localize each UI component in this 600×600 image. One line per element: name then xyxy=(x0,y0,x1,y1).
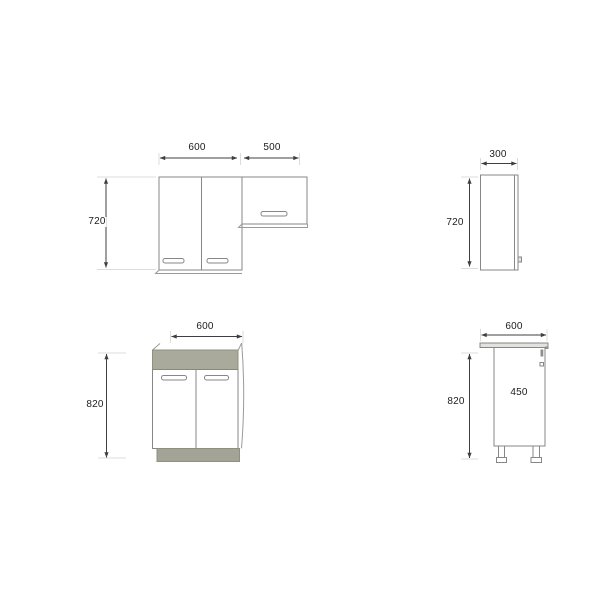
dim-label-base-side-height: 820 xyxy=(446,397,465,407)
plinth xyxy=(157,449,240,462)
wall-unit-front-view xyxy=(97,153,308,274)
technical-drawing: 600 500 720 300 720 600 820 600 450 820 xyxy=(0,0,600,600)
dim-label-wall-width-right: 500 xyxy=(262,143,281,153)
door-handle xyxy=(205,376,229,381)
hinge-detail xyxy=(540,363,544,367)
base-unit-front-view xyxy=(98,331,244,462)
cabinet-underside-edge xyxy=(156,270,243,274)
wall-cabinet-side-body xyxy=(481,175,519,270)
dim-label-wall-height: 720 xyxy=(87,217,106,227)
dim-label-base-height: 820 xyxy=(85,400,104,410)
door-handle-profile xyxy=(541,350,544,357)
dim-label-wall-width-left: 600 xyxy=(187,143,206,153)
dim-label-wall-side-height: 720 xyxy=(445,218,464,228)
worktop-side-edge xyxy=(238,343,242,351)
dim-label-worktop-depth: 600 xyxy=(504,322,523,332)
side-panel-edge xyxy=(242,343,244,448)
door-handle xyxy=(163,259,184,264)
wall-unit-side-view xyxy=(461,158,522,270)
adjustable-leg xyxy=(533,446,540,458)
dim-label-carcass-depth: 450 xyxy=(509,388,528,398)
worktop-front-edge xyxy=(153,350,239,370)
wall-cabinet-short-body xyxy=(242,177,307,224)
cabinet-underside-edge xyxy=(239,224,308,228)
dim-label-wall-depth: 300 xyxy=(488,150,507,160)
worktop-slab xyxy=(480,343,548,348)
leg-foot xyxy=(497,458,507,463)
worktop-drip-edge xyxy=(545,347,549,350)
dim-label-base-width: 600 xyxy=(195,322,214,332)
door-handle xyxy=(261,212,287,217)
base-cabinet-doors xyxy=(153,370,239,449)
base-unit-side-view xyxy=(461,329,549,463)
wall-cabinet-tall-body xyxy=(159,177,242,270)
door-handle xyxy=(162,376,187,381)
adjustable-leg xyxy=(499,446,505,458)
worktop-back-edge xyxy=(153,344,161,351)
leg-foot xyxy=(531,458,542,463)
door-handle-profile xyxy=(518,257,522,262)
drawing-linework xyxy=(0,0,600,600)
door-handle xyxy=(207,259,228,264)
